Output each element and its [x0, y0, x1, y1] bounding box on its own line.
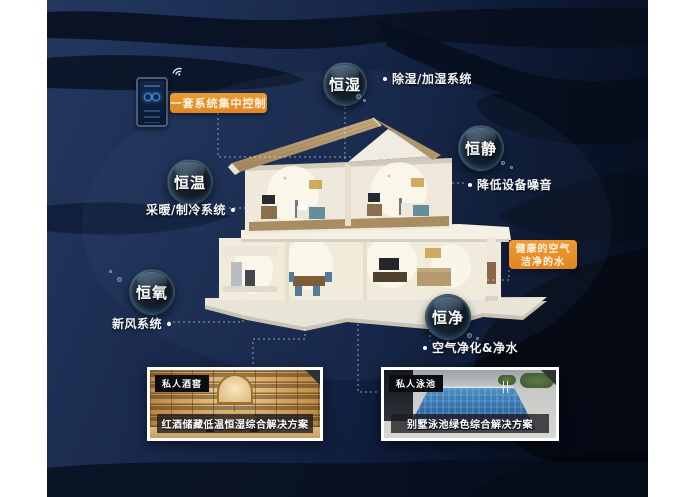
panel-tag: 私人酒窖: [155, 375, 209, 392]
wine-cellar-panel: 私人酒窖 红酒储藏低温恒湿综合解决方案: [147, 367, 323, 441]
central-control-label: 一套系统集中控制: [170, 93, 267, 113]
phone-screen-row: [144, 122, 160, 123]
decor-bubble: [467, 333, 472, 338]
benefit-label: 健康的空气 洁净的水: [509, 240, 577, 269]
bubble-label: 恒温: [174, 172, 206, 193]
phone-screen-row: [144, 116, 160, 118]
bullet-dot: [423, 346, 427, 350]
pool-plants-graphic: [498, 375, 516, 385]
panel-caption: 红酒储藏低温恒湿综合解决方案: [157, 414, 313, 433]
decor-bubble: [117, 277, 122, 282]
system-label-text: 除湿/加湿系统: [392, 70, 472, 87]
feature-bubble-constant-purity: 恒净: [425, 294, 471, 340]
panel-tag: 私人泳池: [389, 375, 443, 392]
feature-bubble-constant-temperature: 恒温: [167, 159, 213, 205]
corner-fold-icon: [541, 370, 556, 385]
system-label-humidity-system: 除湿/加湿系统: [383, 70, 472, 87]
system-label-text: 空气净化&净水: [432, 339, 518, 356]
phone-screen-row: [144, 85, 160, 87]
corner-fold-icon: [305, 370, 320, 385]
bubble-label: 恒静: [465, 138, 497, 159]
system-label-noise-reduction: 降低设备噪音: [468, 176, 552, 193]
feature-bubble-constant-humidity: 恒湿: [323, 62, 367, 106]
wine-arch-graphic: [217, 374, 253, 404]
smart-control-phone-icon: [136, 77, 168, 127]
decor-bubble: [510, 166, 513, 169]
benefit-line-2: 洁净的水: [511, 256, 575, 269]
decor-bubble: [501, 161, 505, 165]
pool-ladder-graphic: [503, 381, 505, 393]
pool-panel: 私人泳池 别墅泳池绿色综合解决方案: [381, 367, 559, 441]
feature-bubble-constant-oxygen: 恒氧: [129, 269, 175, 315]
phone-screen-row: [144, 110, 160, 112]
phone-screen: [140, 81, 164, 123]
panel-caption: 别墅泳池绿色综合解决方案: [391, 414, 549, 433]
system-label-text: 新风系统: [112, 315, 162, 332]
feature-bubble-constant-quiet: 恒静: [458, 125, 504, 171]
decor-bubble: [356, 94, 361, 99]
poster-canvas: 一套系统集中控制 恒湿 恒静 恒温 恒氧 恒净 除湿/加湿系统: [47, 0, 648, 497]
poster-page: 一套系统集中控制 恒湿 恒静 恒温 恒氧 恒净 除湿/加湿系统: [0, 0, 700, 497]
central-control-text: 一套系统集中控制: [171, 95, 267, 111]
phone-dial-knob: [152, 93, 160, 101]
pool-photo: 私人泳池 别墅泳池绿色综合解决方案: [384, 370, 556, 438]
decor-bubble: [109, 270, 112, 273]
system-label-purification-system: 空气净化&净水: [423, 339, 518, 356]
phone-dial-knob: [144, 93, 152, 101]
bullet-dot: [167, 322, 171, 326]
system-label-text: 降低设备噪音: [477, 176, 552, 193]
benefit-line-1: 健康的空气: [511, 243, 575, 256]
bubble-label: 恒净: [432, 307, 464, 328]
system-label-text: 采暖/制冷系统: [146, 201, 226, 218]
bullet-dot: [231, 208, 235, 212]
wine-cellar-photo: 私人酒窖 红酒储藏低温恒湿综合解决方案: [150, 370, 320, 438]
wifi-signal-icon: [165, 58, 188, 81]
system-label-hvac-system: 采暖/制冷系统: [146, 201, 235, 218]
decor-bubble: [363, 99, 366, 102]
bubble-label: 恒湿: [329, 74, 361, 95]
bullet-dot: [468, 183, 472, 187]
bullet-dot: [383, 77, 387, 81]
system-label-fresh-air-system: 新风系统: [112, 315, 171, 332]
bubble-label: 恒氧: [136, 282, 168, 303]
